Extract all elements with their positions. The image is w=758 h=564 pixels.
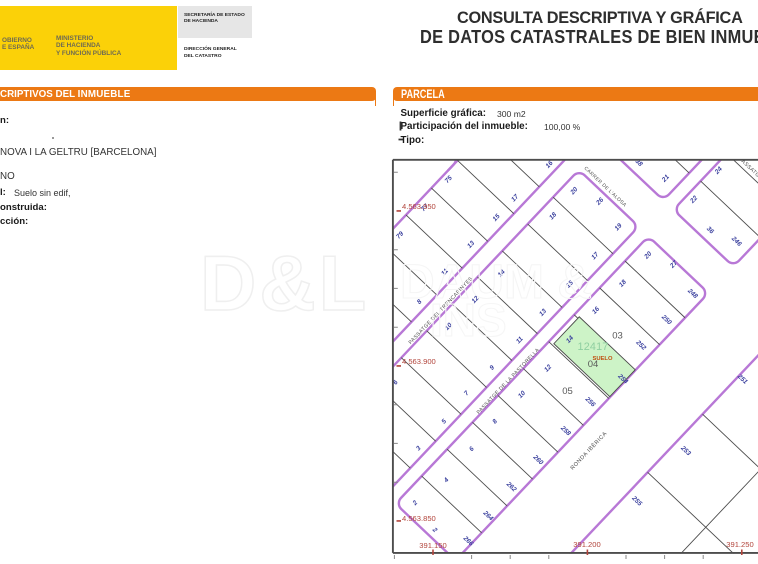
svg-text:13: 13	[466, 240, 476, 250]
svg-text:9: 9	[488, 364, 496, 372]
svg-text:18: 18	[548, 211, 558, 221]
svg-text:12417: 12417	[577, 341, 608, 353]
svg-text:260: 260	[531, 453, 545, 466]
svg-text:3: 3	[415, 445, 423, 453]
svg-text:15: 15	[492, 213, 502, 223]
svg-text:4.563.850: 4.563.850	[402, 514, 436, 523]
svg-text:36: 36	[705, 225, 715, 235]
svg-text:7: 7	[463, 390, 471, 398]
svg-text:391.150: 391.150	[419, 541, 446, 550]
svg-text:CARRER DE L'ALOSA: CARRER DE L'ALOSA	[583, 166, 628, 209]
svg-text:266: 266	[461, 534, 475, 547]
svg-text:05: 05	[562, 386, 573, 397]
svg-text:4.563.900: 4.563.900	[402, 357, 436, 366]
svg-text:20: 20	[643, 250, 654, 261]
svg-text:22: 22	[688, 194, 699, 205]
svg-text:10: 10	[517, 390, 527, 400]
svg-text:2: 2	[411, 499, 420, 507]
svg-text:2: 2	[430, 526, 438, 535]
svg-text:13: 13	[538, 308, 548, 318]
svg-text:391.250: 391.250	[726, 540, 753, 549]
svg-text:17: 17	[510, 193, 520, 203]
svg-text:RONDA IBÈRICA: RONDA IBÈRICA	[569, 430, 609, 471]
svg-text:04: 04	[588, 359, 599, 370]
svg-text:252: 252	[634, 339, 648, 352]
svg-text:255: 255	[630, 494, 644, 507]
svg-text:16: 16	[545, 160, 555, 170]
svg-text:262: 262	[504, 480, 518, 493]
svg-text:5: 5	[440, 418, 448, 426]
svg-text:INS: INS	[430, 294, 507, 346]
svg-text:27: 27	[668, 259, 679, 270]
svg-text:75: 75	[444, 174, 454, 184]
svg-text:6: 6	[468, 445, 476, 453]
svg-text:03: 03	[612, 331, 623, 342]
svg-text:8: 8	[491, 418, 499, 426]
svg-text:19: 19	[613, 222, 623, 232]
svg-text:256: 256	[583, 395, 597, 408]
svg-text:391.200: 391.200	[573, 540, 600, 549]
svg-text:251: 251	[735, 373, 749, 386]
svg-text:253: 253	[679, 444, 693, 457]
svg-text:79: 79	[395, 230, 405, 240]
svg-text:258: 258	[558, 424, 572, 437]
svg-text:248: 248	[685, 287, 699, 300]
svg-text:21: 21	[660, 173, 671, 184]
svg-text:26: 26	[594, 196, 605, 207]
svg-text:4: 4	[442, 476, 451, 484]
svg-text:246: 246	[729, 235, 743, 248]
svg-text:250: 250	[659, 313, 673, 326]
svg-text:20: 20	[569, 186, 580, 197]
svg-text:11: 11	[515, 335, 525, 345]
svg-text:4.563.950: 4.563.950	[402, 202, 436, 211]
svg-text:12: 12	[543, 363, 553, 373]
svg-text:18: 18	[618, 278, 628, 288]
svg-text:16: 16	[591, 305, 601, 315]
